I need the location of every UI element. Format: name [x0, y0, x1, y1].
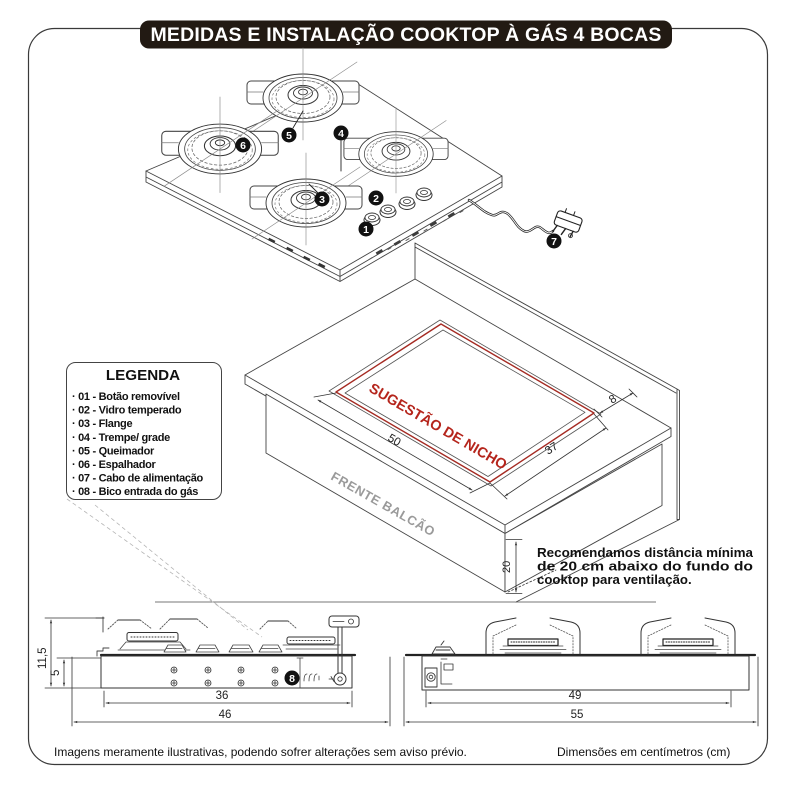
svg-text:36: 36 [216, 690, 229, 702]
svg-text:· 05 - Queimador: · 05 - Queimador [72, 445, 155, 457]
svg-text:· 01 - Botão removível: · 01 - Botão removível [72, 391, 180, 403]
svg-text:46: 46 [219, 709, 232, 721]
svg-text:1: 1 [363, 224, 369, 236]
svg-text:4: 4 [338, 128, 344, 140]
svg-text:2: 2 [373, 193, 379, 205]
svg-text:· 03 - Flange: · 03 - Flange [72, 418, 132, 430]
svg-text:20: 20 [501, 561, 513, 573]
svg-text:5: 5 [286, 130, 292, 142]
svg-text:· 08 - Bico entrada do gás: · 08 - Bico entrada do gás [72, 486, 198, 498]
svg-text:LEGENDA: LEGENDA [106, 367, 180, 384]
svg-text:Imagens meramente ilustrativas: Imagens meramente ilustrativas, podendo … [54, 745, 467, 759]
svg-text:49: 49 [569, 690, 582, 702]
svg-text:11,5: 11,5 [37, 647, 49, 669]
svg-text:5: 5 [50, 670, 62, 676]
svg-text:8: 8 [289, 673, 295, 685]
svg-text:· 07 - Cabo de alimentação: · 07 - Cabo de alimentação [72, 473, 204, 485]
svg-text:· 02 - Vidro temperado: · 02 - Vidro temperado [72, 405, 182, 417]
svg-text:· 06 - Espalhador: · 06 - Espalhador [72, 459, 157, 471]
svg-text:Dimensões em centímetros (cm): Dimensões em centímetros (cm) [557, 745, 730, 759]
svg-text:55: 55 [571, 709, 584, 721]
svg-text:3: 3 [319, 194, 325, 206]
svg-text:cooktop para ventilação.: cooktop para ventilação. [537, 572, 692, 587]
svg-text:· 04 - Trempe/ grade: · 04 - Trempe/ grade [72, 432, 170, 444]
svg-text:7: 7 [551, 236, 557, 248]
svg-text:6: 6 [240, 140, 246, 152]
svg-text:MEDIDAS E INSTALAÇÃO COOKTOP À: MEDIDAS E INSTALAÇÃO COOKTOP À GÁS 4 BOC… [150, 23, 661, 46]
